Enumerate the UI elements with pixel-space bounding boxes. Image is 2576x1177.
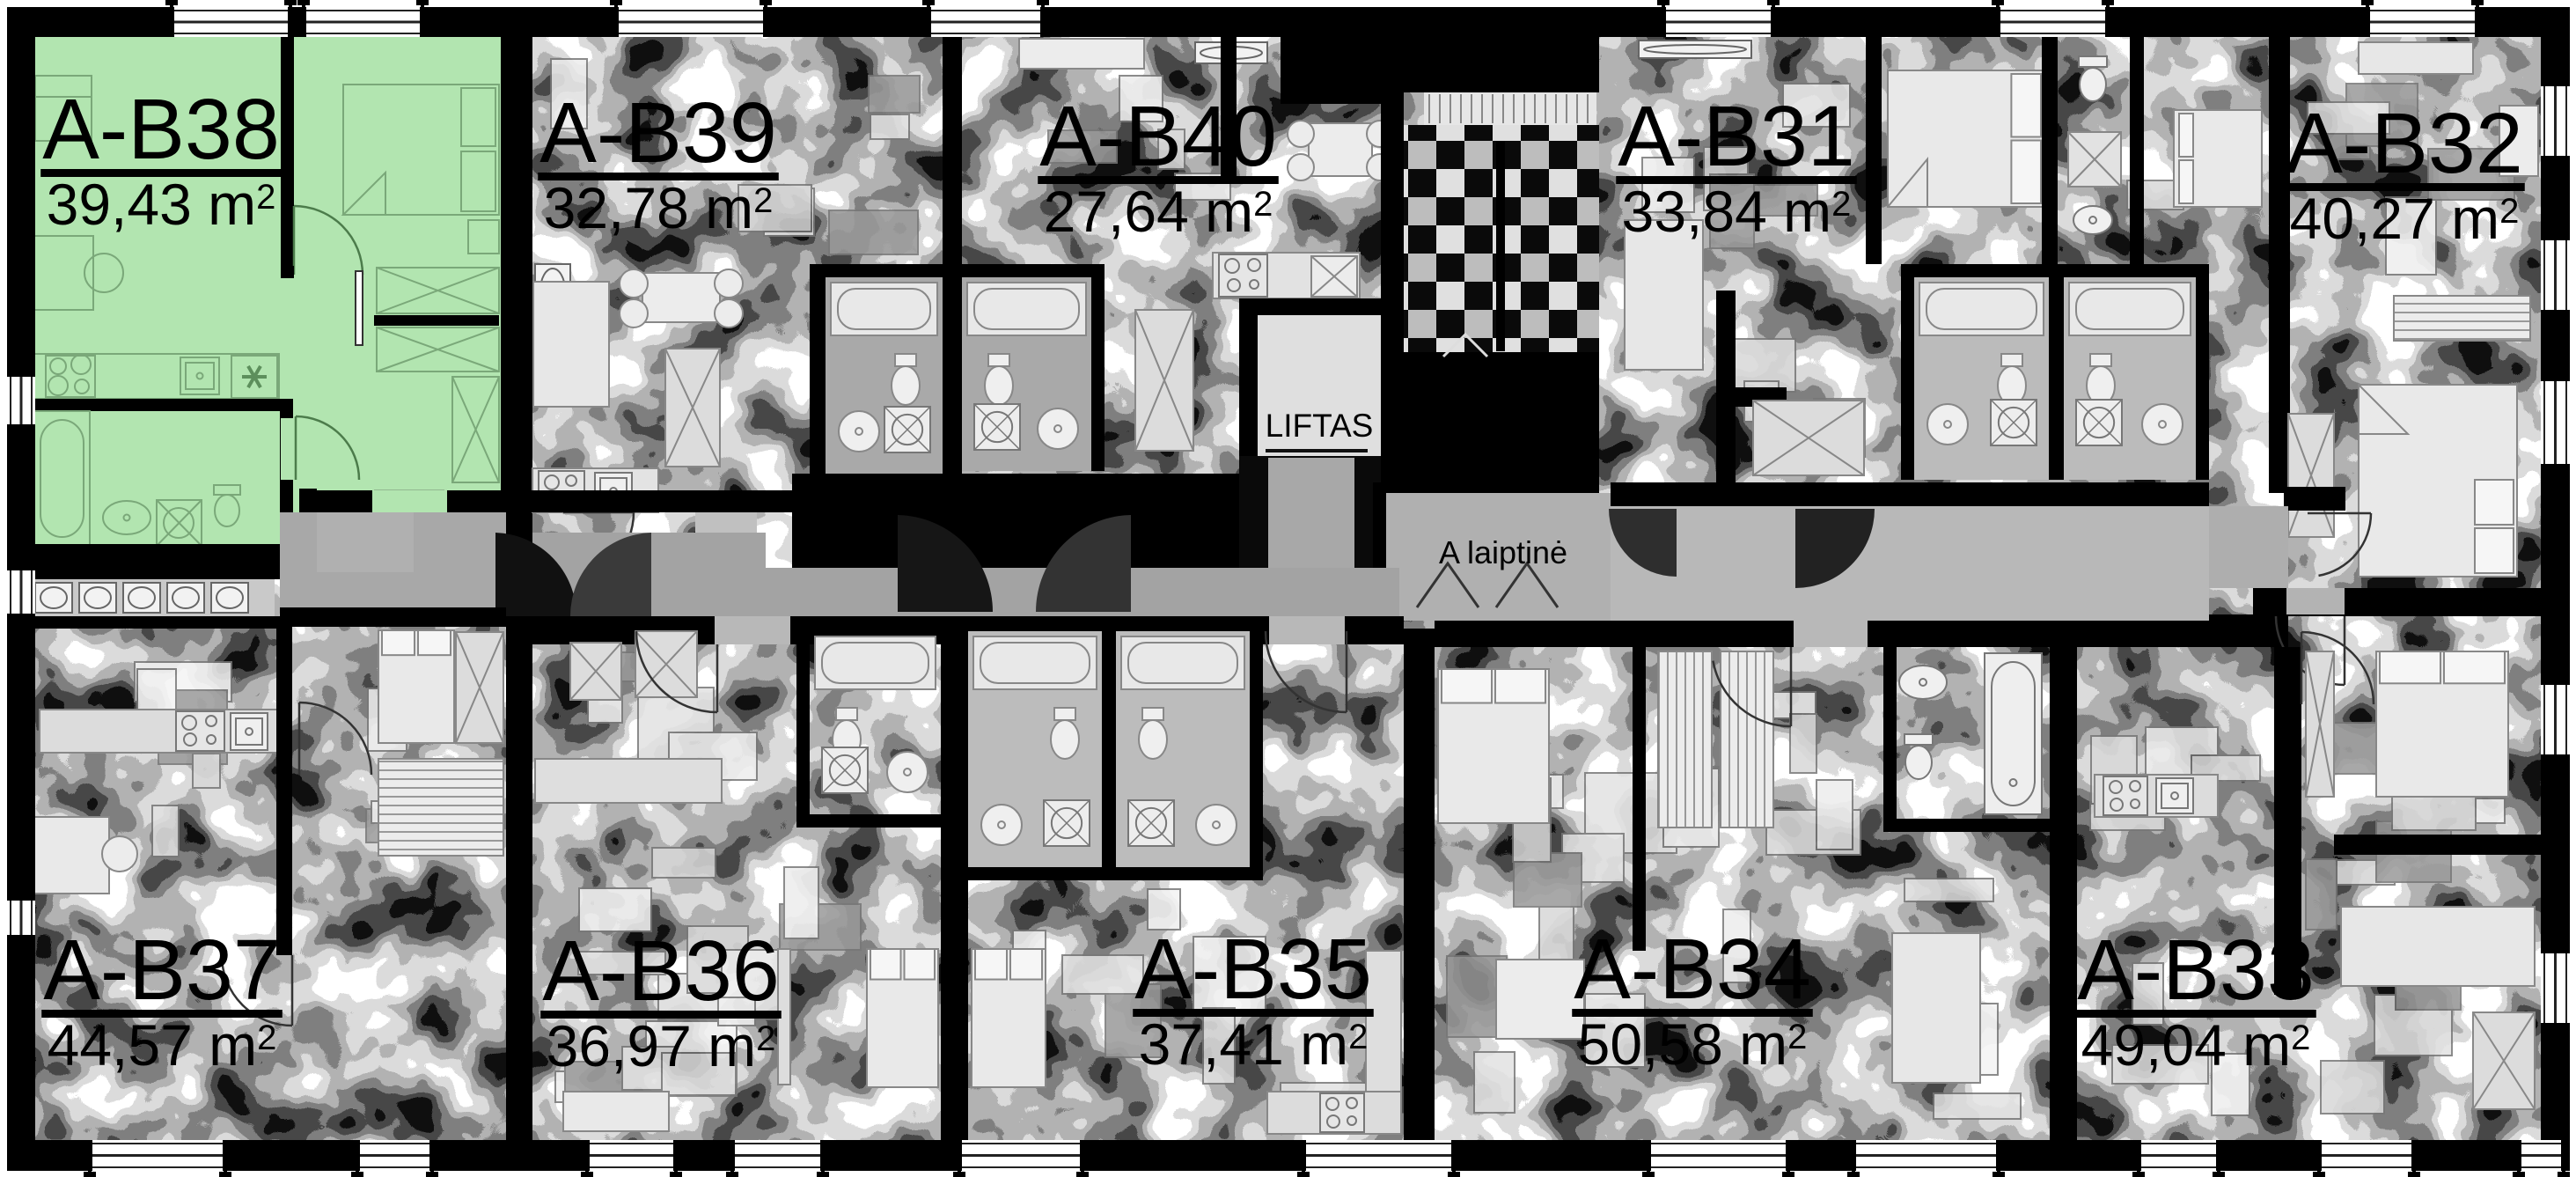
svg-text:A-B34: A-B34 — [1574, 921, 1811, 1017]
svg-text:A-B39: A-B39 — [539, 85, 777, 180]
svg-text:32,78 m2: 32,78 m2 — [544, 175, 774, 240]
svg-text:A-B36: A-B36 — [542, 923, 780, 1019]
svg-text:37,41 m2: 37,41 m2 — [1139, 1011, 1369, 1077]
svg-text:36,97 m2: 36,97 m2 — [547, 1013, 776, 1078]
svg-text:40,27 m2: 40,27 m2 — [2290, 186, 2520, 251]
svg-text:A laiptinė: A laiptinė — [1439, 534, 1567, 570]
svg-text:LIFTAS: LIFTAS — [1266, 408, 1374, 444]
svg-text:33,84 m2: 33,84 m2 — [1622, 179, 1852, 244]
svg-text:A-B31: A-B31 — [1618, 88, 1855, 184]
svg-text:A-B35: A-B35 — [1134, 921, 1372, 1017]
svg-text:49,04 m2: 49,04 m2 — [2081, 1012, 2311, 1078]
svg-text:A-B37: A-B37 — [43, 922, 281, 1018]
svg-text:39,43 m2: 39,43 m2 — [47, 172, 276, 237]
svg-text:A-B40: A-B40 — [1039, 88, 1277, 184]
svg-text:50,58 m2: 50,58 m2 — [1578, 1011, 1808, 1077]
svg-text:27,64 m2: 27,64 m2 — [1044, 179, 1273, 244]
svg-text:44,57 m2: 44,57 m2 — [48, 1012, 277, 1078]
svg-text:A-B33: A-B33 — [2077, 922, 2315, 1018]
svg-text:A-B32: A-B32 — [2286, 95, 2523, 191]
svg-text:A-B38: A-B38 — [42, 81, 280, 177]
